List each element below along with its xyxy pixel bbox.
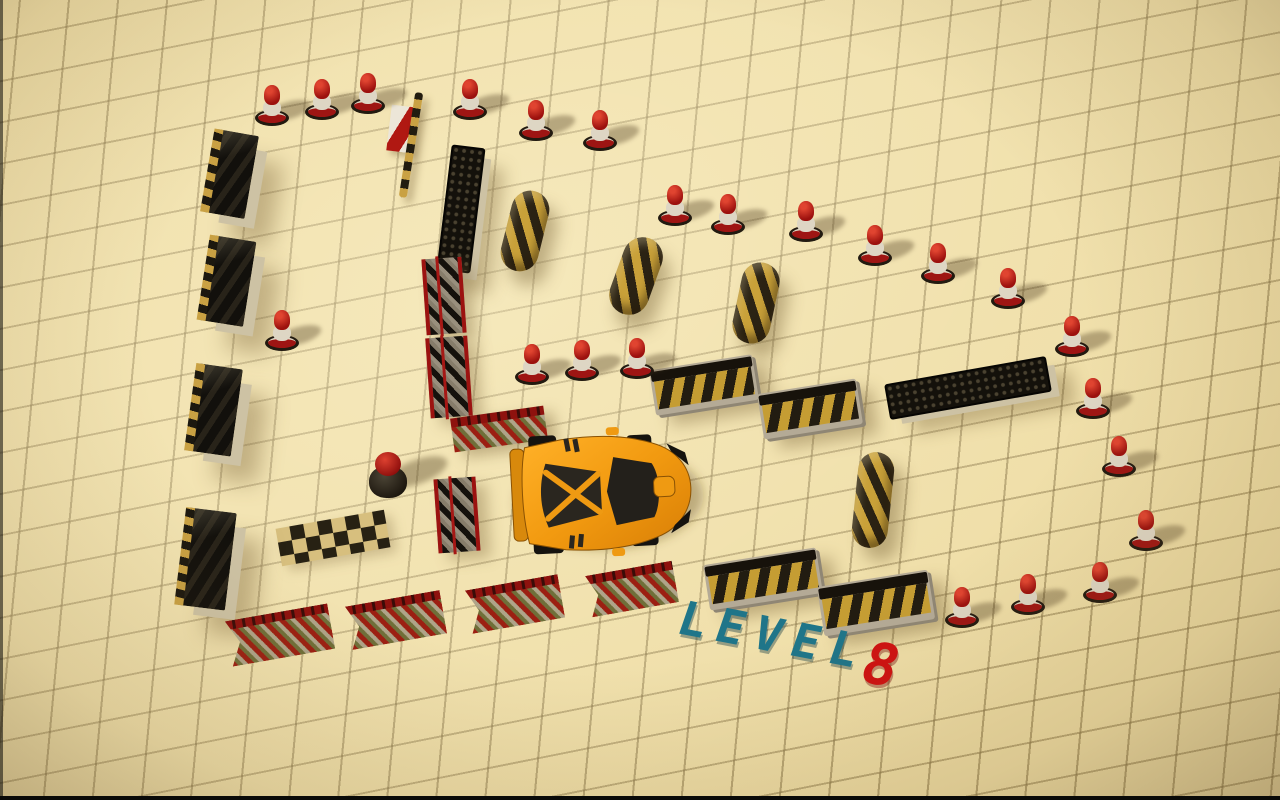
traffic-cone <box>518 95 554 143</box>
hazard-pill-barrier <box>497 187 554 276</box>
spike-barrier <box>425 336 472 419</box>
player-car[interactable] <box>500 423 697 563</box>
cone-top <box>867 225 883 245</box>
cone-top <box>667 185 683 205</box>
barrier-slab <box>203 129 259 219</box>
cone-top <box>1092 562 1108 582</box>
checker-strip <box>276 510 391 567</box>
cone-top <box>1085 378 1101 398</box>
traffic-cone <box>304 74 340 122</box>
edge-bar <box>0 0 3 800</box>
cone-top <box>462 79 478 99</box>
traffic-cone <box>1128 505 1164 553</box>
hazard-pill-barrier <box>850 450 896 549</box>
traffic-cone <box>1101 431 1137 479</box>
bol-cap <box>375 452 401 476</box>
game-viewport[interactable]: LEVEL8 <box>0 0 1280 800</box>
cone-top <box>1111 436 1127 456</box>
cone-top <box>274 310 290 330</box>
traffic-cone <box>990 263 1026 311</box>
rumble-strip <box>436 144 485 273</box>
cone-top <box>1138 510 1154 530</box>
traffic-cone <box>254 80 290 128</box>
cone-top <box>798 201 814 221</box>
barrier-slab <box>187 363 243 456</box>
traffic-cone <box>788 196 824 244</box>
traffic-cone <box>1010 569 1046 617</box>
cone-top <box>524 344 540 364</box>
spike-strip <box>585 561 679 618</box>
cone-top <box>574 340 590 360</box>
cone-top <box>528 100 544 120</box>
cone-top <box>1064 316 1080 336</box>
traffic-cone <box>1075 373 1111 421</box>
barrier-slab <box>177 507 237 610</box>
cone-top <box>360 73 376 93</box>
traffic-cone <box>710 189 746 237</box>
spike-barrier <box>421 257 466 336</box>
road-bollard <box>367 452 411 502</box>
traffic-cone <box>564 335 600 383</box>
cone-top <box>629 338 645 358</box>
cone-top <box>314 79 330 99</box>
obstacle-layer <box>0 0 1280 800</box>
barrier-slab <box>200 235 257 327</box>
rumble-strip <box>884 356 1052 420</box>
traffic-cone <box>657 180 693 228</box>
cone-top <box>954 587 970 607</box>
traffic-cone <box>857 220 893 268</box>
traffic-cone <box>452 74 488 122</box>
spike-strip <box>345 590 447 650</box>
spike-barrier <box>433 477 480 554</box>
traffic-cone <box>619 333 655 381</box>
cone-top <box>592 110 608 130</box>
hazard-pill-barrier <box>604 232 669 321</box>
letterbox-bar <box>0 796 1280 800</box>
cone-top <box>1020 574 1036 594</box>
spike-strip <box>465 574 565 634</box>
hazard-bump <box>757 378 863 439</box>
traffic-cone <box>582 105 618 153</box>
traffic-cone <box>920 238 956 286</box>
car-graphic <box>500 423 697 563</box>
traffic-cone <box>1054 311 1090 359</box>
traffic-cone <box>514 339 550 387</box>
cone-top <box>720 194 736 214</box>
cone-top <box>1000 268 1016 288</box>
spike-strip <box>225 603 335 666</box>
traffic-cone <box>264 305 300 353</box>
traffic-cone <box>350 68 386 116</box>
cone-top <box>264 85 280 105</box>
traffic-cone <box>944 582 980 630</box>
hazard-pill-barrier <box>729 259 783 347</box>
cone-top <box>930 243 946 263</box>
traffic-cone <box>1082 557 1118 605</box>
